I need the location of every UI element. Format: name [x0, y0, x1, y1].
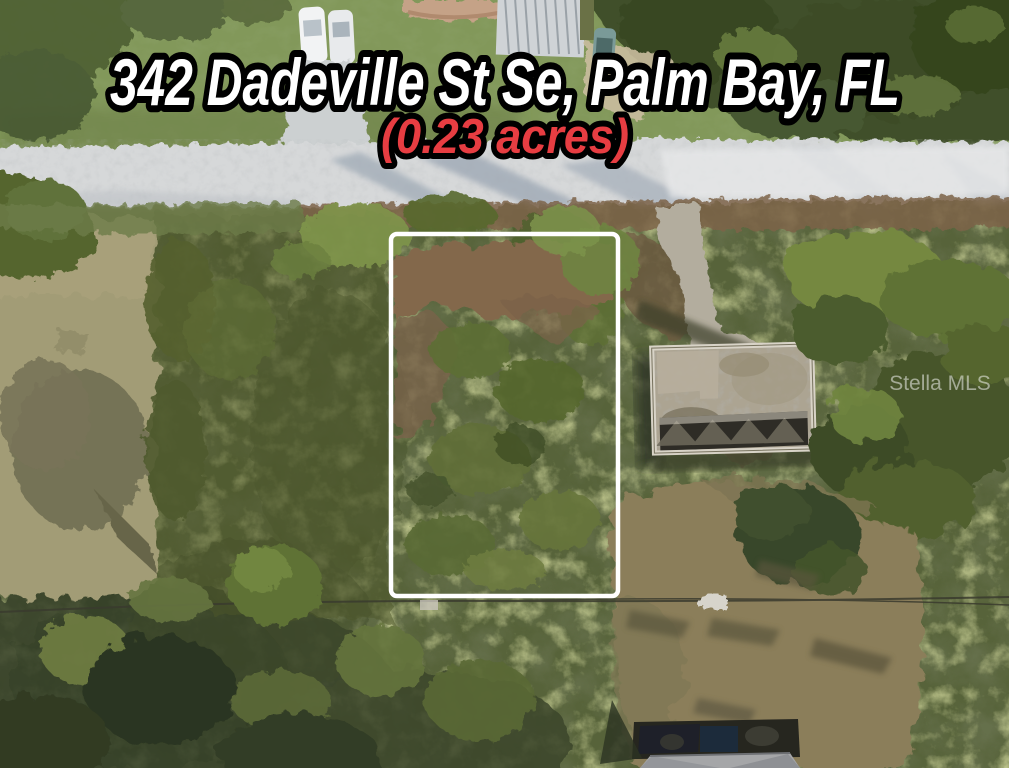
svg-text:342 Dadeville St Se, Palm Bay,: 342 Dadeville St Se, Palm Bay, FL — [110, 45, 900, 119]
svg-text:Stella MLS: Stella MLS — [889, 372, 991, 395]
svg-text:(0.23 acres): (0.23 acres) — [381, 110, 629, 164]
